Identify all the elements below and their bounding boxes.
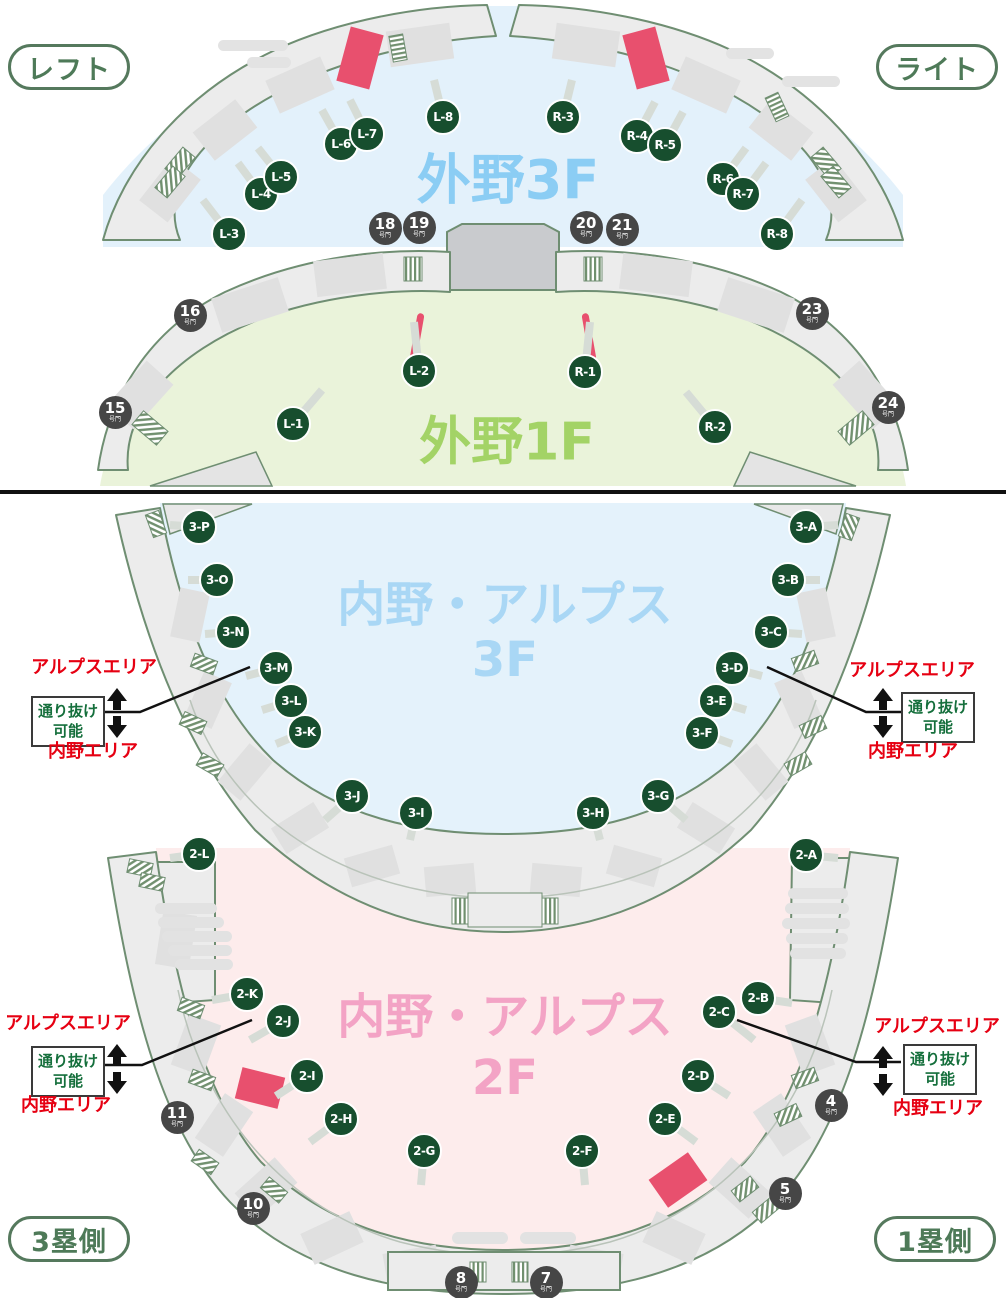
ramp-bar bbox=[247, 57, 291, 68]
marker-L-2: L-2 bbox=[401, 353, 437, 389]
marker-2-K: 2-K bbox=[229, 976, 265, 1012]
marker-2-J: 2-J bbox=[265, 1003, 301, 1039]
pill-right-field: ライト bbox=[876, 44, 998, 90]
marker-L-5: L-5 bbox=[263, 159, 299, 195]
pass-through-line2: 可能 bbox=[33, 1071, 103, 1091]
marker-R-3: R-3 bbox=[545, 99, 581, 135]
gate-number: 8 bbox=[456, 1271, 466, 1286]
marker-3-B: 3-B bbox=[770, 562, 806, 598]
pill-1st-base-side: 1塁側 bbox=[874, 1216, 996, 1262]
gate-suffix: 号門 bbox=[109, 417, 121, 423]
marker-R-1: R-1 bbox=[567, 354, 603, 390]
gate-number: 18 bbox=[375, 217, 396, 232]
ramp-bar bbox=[782, 76, 840, 87]
gate-11: 11号門 bbox=[161, 1101, 194, 1134]
scoreboard-block bbox=[447, 224, 559, 290]
marker-3-M: 3-M bbox=[258, 650, 294, 686]
marker-R-7: R-7 bbox=[725, 176, 761, 212]
marker-2-I: 2-I bbox=[289, 1058, 325, 1094]
pill-3rd-base-side: 3塁側 bbox=[8, 1216, 130, 1262]
up-down-arrows-icon bbox=[107, 1044, 127, 1094]
gate-number: 5 bbox=[780, 1182, 790, 1197]
marker-2-C: 2-C bbox=[701, 994, 737, 1030]
marker-3-I: 3-I bbox=[398, 795, 434, 831]
marker-L-8: L-8 bbox=[425, 99, 461, 135]
stadium-concourse-map: レフト ライト 3塁側 1塁側 外野3F 外野1F 内野・アルプス 3F 内野・… bbox=[0, 0, 1006, 1298]
gate-suffix: 号門 bbox=[779, 1198, 791, 1204]
gate-number: 11 bbox=[167, 1106, 188, 1121]
section-divider bbox=[0, 490, 1006, 494]
gate-suffix: 号門 bbox=[580, 232, 592, 238]
pass-through-line1: 通り抜け bbox=[905, 1049, 975, 1069]
title-outfield-1f: 外野1F bbox=[419, 400, 595, 475]
gate-suffix: 号門 bbox=[247, 1213, 259, 1219]
marker-L-3: L-3 bbox=[211, 216, 247, 252]
up-down-arrows-icon bbox=[107, 688, 127, 738]
gate-suffix: 号門 bbox=[455, 1287, 467, 1293]
gate-number: 20 bbox=[576, 216, 597, 231]
infield-area-label: 内野エリア bbox=[868, 737, 958, 763]
gate-number: 4 bbox=[826, 1094, 836, 1109]
pass-through-line2: 可能 bbox=[903, 717, 973, 737]
title-infield-2f-line2: 2F bbox=[472, 1050, 538, 1106]
ramp-bar bbox=[726, 48, 774, 59]
gate-23: 23号門 bbox=[796, 297, 829, 330]
marker-2-F: 2-F bbox=[564, 1133, 600, 1169]
marker-3-O: 3-O bbox=[199, 562, 235, 598]
marker-3-D: 3-D bbox=[714, 650, 750, 686]
gate-8: 8号門 bbox=[445, 1266, 478, 1298]
marker-2-L: 2-L bbox=[181, 836, 217, 872]
gate-suffix: 号門 bbox=[379, 233, 391, 239]
gate-number: 21 bbox=[612, 218, 633, 233]
gate-number: 7 bbox=[541, 1271, 551, 1286]
marker-3-G: 3-G bbox=[640, 778, 676, 814]
pass-through-line1: 通り抜け bbox=[33, 1051, 103, 1071]
gate-5: 5号門 bbox=[769, 1177, 802, 1210]
pass-through-line1: 通り抜け bbox=[903, 697, 973, 717]
marker-L-7: L-7 bbox=[349, 116, 385, 152]
title-infield-2f-line1: 内野・アルプス bbox=[337, 977, 673, 1047]
stairs-icon bbox=[542, 898, 558, 924]
infield-area-label: 内野エリア bbox=[21, 1091, 111, 1117]
gate-19: 19号門 bbox=[403, 211, 436, 244]
gate-suffix: 号門 bbox=[171, 1122, 183, 1128]
gate-suffix: 号門 bbox=[825, 1110, 837, 1116]
up-down-arrows-icon bbox=[873, 1046, 893, 1096]
infield-area-label: 内野エリア bbox=[48, 737, 138, 763]
marker-2-B: 2-B bbox=[740, 980, 776, 1016]
marker-3-N: 3-N bbox=[215, 614, 251, 650]
gate-4: 4号門 bbox=[815, 1089, 848, 1122]
gate-suffix: 号門 bbox=[806, 318, 818, 324]
alps-area-label: アルプスエリア bbox=[849, 656, 975, 682]
gate-number: 24 bbox=[878, 396, 899, 411]
pass-through-box: 通り抜け 可能 bbox=[31, 1046, 105, 1097]
marker-3-L: 3-L bbox=[273, 683, 309, 719]
marker-3-A: 3-A bbox=[788, 509, 824, 545]
marker-2-D: 2-D bbox=[680, 1058, 716, 1094]
marker-3-C: 3-C bbox=[753, 614, 789, 650]
marker-R-8: R-8 bbox=[759, 216, 795, 252]
marker-3-E: 3-E bbox=[698, 683, 734, 719]
marker-3-F: 3-F bbox=[684, 715, 720, 751]
marker-3-H: 3-H bbox=[575, 795, 611, 831]
alps-area-label: アルプスエリア bbox=[5, 1009, 131, 1035]
ramp-bar bbox=[218, 40, 288, 51]
pass-through-box: 通り抜け 可能 bbox=[903, 1044, 977, 1095]
title-outfield-3f: 外野3F bbox=[417, 136, 599, 215]
pass-through-box: 通り抜け 可能 bbox=[901, 692, 975, 743]
pass-through-line1: 通り抜け bbox=[33, 701, 103, 721]
gate-number: 15 bbox=[105, 401, 126, 416]
pill-left-field: レフト bbox=[8, 44, 130, 90]
gate-number: 16 bbox=[180, 304, 201, 319]
stairs-icon bbox=[584, 257, 602, 281]
gate-21: 21号門 bbox=[606, 213, 639, 246]
gate-suffix: 号門 bbox=[540, 1287, 552, 1293]
gate-number: 23 bbox=[802, 302, 823, 317]
marker-2-H: 2-H bbox=[323, 1101, 359, 1137]
gate-24: 24号門 bbox=[872, 391, 905, 424]
marker-L-1: L-1 bbox=[275, 406, 311, 442]
gate-number: 10 bbox=[243, 1197, 264, 1212]
title-infield-3f-line2: 3F bbox=[472, 632, 538, 688]
gate-7: 7号門 bbox=[530, 1266, 563, 1298]
stairs-icon bbox=[404, 257, 422, 281]
marker-R-5: R-5 bbox=[647, 127, 683, 163]
gate-10: 10号門 bbox=[237, 1192, 270, 1225]
infield-area-label: 内野エリア bbox=[893, 1094, 983, 1120]
gate-15: 15号門 bbox=[99, 396, 132, 429]
gate-suffix: 号門 bbox=[616, 234, 628, 240]
gate-suffix: 号門 bbox=[184, 320, 196, 326]
marker-3-J: 3-J bbox=[334, 778, 370, 814]
stairs-icon bbox=[452, 898, 468, 924]
title-infield-3f-line1: 内野・アルプス bbox=[337, 565, 673, 635]
gate-20: 20号門 bbox=[570, 211, 603, 244]
gate-18: 18号門 bbox=[369, 212, 402, 245]
gate-number: 19 bbox=[409, 216, 430, 231]
marker-2-A: 2-A bbox=[788, 837, 824, 873]
gate-suffix: 号門 bbox=[882, 412, 894, 418]
pass-through-line2: 可能 bbox=[905, 1069, 975, 1089]
up-down-arrows-icon bbox=[873, 688, 893, 738]
gate-16: 16号門 bbox=[174, 299, 207, 332]
marker-3-K: 3-K bbox=[287, 714, 323, 750]
marker-R-2: R-2 bbox=[697, 409, 733, 445]
marker-2-G: 2-G bbox=[406, 1133, 442, 1169]
gate-suffix: 号門 bbox=[413, 232, 425, 238]
alps-area-label: アルプスエリア bbox=[874, 1012, 1000, 1038]
marker-3-P: 3-P bbox=[181, 509, 217, 545]
marker-2-E: 2-E bbox=[647, 1101, 683, 1137]
alps-area-label: アルプスエリア bbox=[31, 653, 157, 679]
